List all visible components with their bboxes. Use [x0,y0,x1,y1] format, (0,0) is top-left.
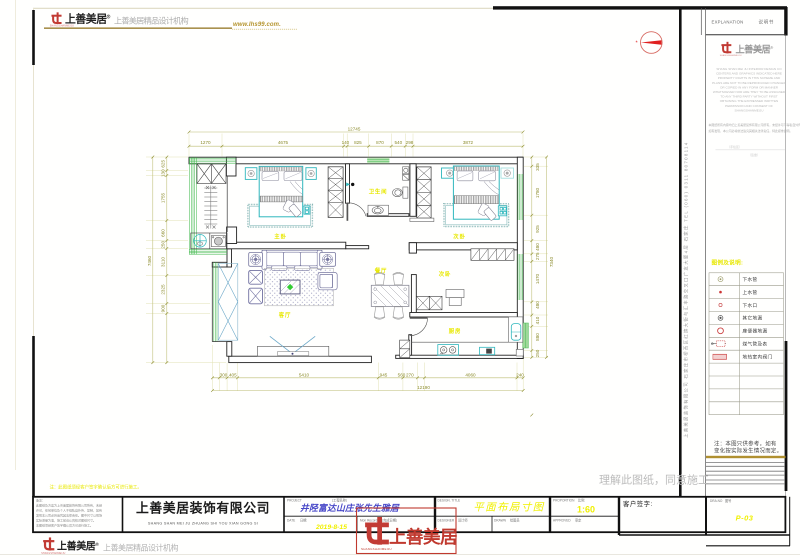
svg-text:平面布局寸图: 平面布局寸图 [473,502,544,514]
svg-text:此图纸及方案为上善美居装饰有限公司所有，未经: 此图纸及方案为上善美居装饰有限公司所有，未经 [36,503,102,508]
svg-text:理解此图纸，同意施工: 理解此图纸，同意施工 [599,473,709,487]
svg-text:270: 270 [406,372,414,377]
svg-text:130: 130 [161,169,166,177]
svg-text:PROPERTY RIGHTS IN THIS SCHEME: PROPERTY RIGHTS IN THIS SCHEME AND [718,76,781,80]
svg-text:绘图员: 绘图员 [510,517,520,522]
svg-text:上水管: 上水管 [743,289,758,296]
svg-text:www.lhs99.com.: www.lhs99.com. [233,22,281,28]
svg-text:本图纸所有内容均归上善美居装饰有限公司所有，未经许可不得私自: 本图纸所有内容均归上善美居装饰有限公司所有，未经许可不得私自外传复制翻印， [709,122,800,127]
svg-text:480: 480 [535,301,540,309]
svg-text:TO ANY THIRD PARTY WITHOUT FIR: TO ANY THIRD PARTY WITHOUT FIRST [720,95,777,99]
svg-text:座便器地漏: 座便器地漏 [743,328,768,335]
svg-text:12190: 12190 [417,385,430,390]
svg-text:4675: 4675 [278,140,289,145]
svg-text:上善美居®: 上善美居® [736,44,774,55]
svg-text:1270: 1270 [200,140,211,145]
svg-text:客户签字:: 客户签字: [623,499,653,508]
svg-text:主卧: 主卧 [274,233,286,241]
svg-text:上善美居装饰有限公司: 上善美居装饰有限公司 [136,501,270,516]
svg-text:7340: 7340 [549,256,554,267]
svg-text:注：此图纸须经客户签字确认后方可进行施工。: 注：此图纸须经客户签字确认后方可进行施工。 [50,483,142,490]
svg-text:发现本公司必将追究其法律责任。图中尺寸以现场: 发现本公司必将追究其法律责任。图中尺寸以现场 [36,513,102,518]
svg-text:3872: 3872 [463,140,474,145]
svg-text:上善美居: 上善美居 [389,527,457,547]
svg-text:实际测量为准，施工前请认真核对图纸尺寸。: 实际测量为准，施工前请认真核对图纸尺寸。 [36,518,96,523]
svg-text:250: 250 [535,349,540,357]
svg-text:餐厅: 餐厅 [375,267,387,275]
svg-text:DATE: DATE [287,518,295,522]
svg-text:1470: 1470 [535,273,540,284]
svg-text:870: 870 [376,140,384,145]
svg-text:煤气管及表: 煤气管及表 [743,341,768,348]
svg-text:DESIGNER: DESIGNER [438,518,455,522]
svg-text:上善美居精品设计机构: 上善美居精品设计机构 [114,15,188,25]
svg-text:660: 660 [161,229,166,237]
svg-text:140: 140 [342,140,350,145]
svg-text:PROPORTION: PROPORTION [553,498,575,502]
svg-text:OBTAINING THE EXPRESSED WRITTE: OBTAINING THE EXPRESSED WRITTEN [720,99,779,103]
svg-text:DRA.NO: DRA.NO [710,499,723,503]
svg-text:925: 925 [535,225,540,233]
svg-text:945: 945 [380,372,388,377]
svg-text:EXPLANATION: EXPLANATION [712,20,744,25]
svg-text:SHANG SHAN MEI JU INTERIOR DES: SHANG SHAN MEI JU INTERIOR DESIGN CO [716,67,782,71]
svg-text:4060: 4060 [465,372,476,377]
svg-text:许可，任何单位及个人不得私自外传、复制，如有: 许可，任何单位及个人不得私自外传、复制，如有 [36,508,102,513]
svg-text:298: 298 [406,140,414,145]
svg-text:变化按实际发生情况而定。: 变化按实际发生情况而定。 [714,446,782,454]
svg-text:7460: 7460 [147,255,152,266]
svg-text:卫生间: 卫生间 [369,188,388,196]
svg-text:注：本图只供参考，如有: 注：本图只供参考，如有 [714,439,777,447]
svg-text:880: 880 [535,333,540,341]
svg-text:（手绘区）: （手绘区） [727,144,742,149]
svg-text:*: * [636,41,639,47]
svg-text:设计师: 设计师 [458,517,468,522]
svg-text:1780: 1780 [535,187,540,198]
svg-text:比例:: 比例: [578,497,585,502]
svg-text:560: 560 [398,372,406,377]
svg-text:12745: 12745 [348,126,361,131]
svg-text:日期:: 日期: [300,517,307,522]
svg-text:次卧: 次卧 [453,233,465,241]
svg-text:335: 335 [535,163,540,171]
svg-text:上善美居®: 上善美居® [57,540,99,553]
svg-text:2325: 2325 [161,284,166,295]
svg-text:DRAWN: DRAWN [494,518,507,522]
svg-text:备注：: 备注： [36,498,45,503]
svg-text:PROJECT: PROJECT [287,498,302,502]
svg-text:1755: 1755 [161,192,166,203]
svg-text:下水管: 下水管 [743,276,758,283]
svg-text:240: 240 [516,372,524,377]
svg-text:Mon Record: Mon Record [360,518,378,522]
svg-text:825: 825 [354,140,362,145]
svg-text:地热室内阀门: 地热室内阀门 [743,353,773,360]
svg-text:275: 275 [535,252,540,260]
svg-text:250: 250 [161,241,166,249]
svg-text:OR COPIED IN ANY FORM OR MANNE: OR COPIED IN ANY FORM OR MANNER [720,85,779,89]
svg-text:410: 410 [535,316,540,324]
svg-text:上善美居®: 上善美居® [65,11,111,25]
svg-text:SHANG SHAN MEI JU ZHUANG SHI Y: SHANG SHAN MEI JU ZHUANG SHI YOU XIAN GO… [148,522,258,526]
svg-text:900: 900 [161,304,166,312]
svg-text:1:60: 1:60 [577,505,595,515]
svg-text:其它地漏: 其它地漏 [743,315,763,322]
svg-text:审定: 审定 [575,517,582,522]
svg-text:300: 300 [220,372,228,377]
svg-text:下水口: 下水口 [743,302,758,309]
svg-text:厨房: 厨房 [449,327,461,335]
svg-text:5410: 5410 [299,372,310,377]
svg-text:CENTERS AND GRAPHICS INDICATED: CENTERS AND GRAPHICS INDICATED HERE [716,72,782,76]
svg-text:480: 480 [535,243,540,251]
svg-text:本图纸须经客户签字确认后方可进行施工。: 本图纸须经客户签字确认后方可进行施工。 [36,523,93,528]
svg-text:（完成日期）: （完成日期） [380,517,399,522]
svg-text:上善美居精品设计机构: 上善美居精品设计机构 [103,542,178,552]
svg-text:SHANGSHANMEIJU: SHANGSHANMEIJU [735,108,764,112]
svg-text:3110: 3110 [161,257,166,267]
svg-text:PERMISSION AND CONSENT OF: PERMISSION AND CONSENT OF [725,104,773,108]
svg-text:客厅: 客厅 [279,311,291,319]
svg-text:（工程名称）: （工程名称） [330,497,349,502]
svg-text:APPROVED: APPROVED [553,518,571,522]
svg-text:DESIGN. TITLE: DESIGN. TITLE [438,498,461,502]
svg-text:405: 405 [229,372,237,377]
svg-text:图号: 图号 [725,498,731,503]
svg-text:次卧: 次卧 [439,270,451,278]
svg-text:（签章）: （签章） [748,152,760,157]
svg-text:2019-8-15: 2019-8-15 [315,524,347,531]
svg-text:625: 625 [161,160,166,168]
svg-text:540: 540 [394,140,402,145]
svg-text:说明书: 说明书 [759,19,774,26]
svg-text:WHATSOEVER NOR ARE THEY TO BE: WHATSOEVER NOR ARE THEY TO BE ASSIGNED [713,90,786,94]
svg-text:图例及说明:: 图例及说明: [712,259,744,267]
svg-text:如有发现，本公司必将依法追究其相关法律责任，特此郑重说明。: 如有发现，本公司必将依法追究其相关法律责任，特此郑重说明。 [709,128,793,133]
svg-text:上善美居装饰有限公司 石家庄市桥西区红旗大街与汇丰路交叉口广: 上善美居装饰有限公司 石家庄市桥西区红旗大街与汇丰路交叉口广友大厦4层 石家庄 … [683,141,690,438]
svg-text:SHANGSHANMEIJU: SHANGSHANMEIJU [361,547,392,551]
svg-text:PLANS ARE NOT TO BE REPRODUCED: PLANS ARE NOT TO BE REPRODUCED CHANGED [712,81,787,85]
svg-text:P-03: P-03 [736,514,754,523]
